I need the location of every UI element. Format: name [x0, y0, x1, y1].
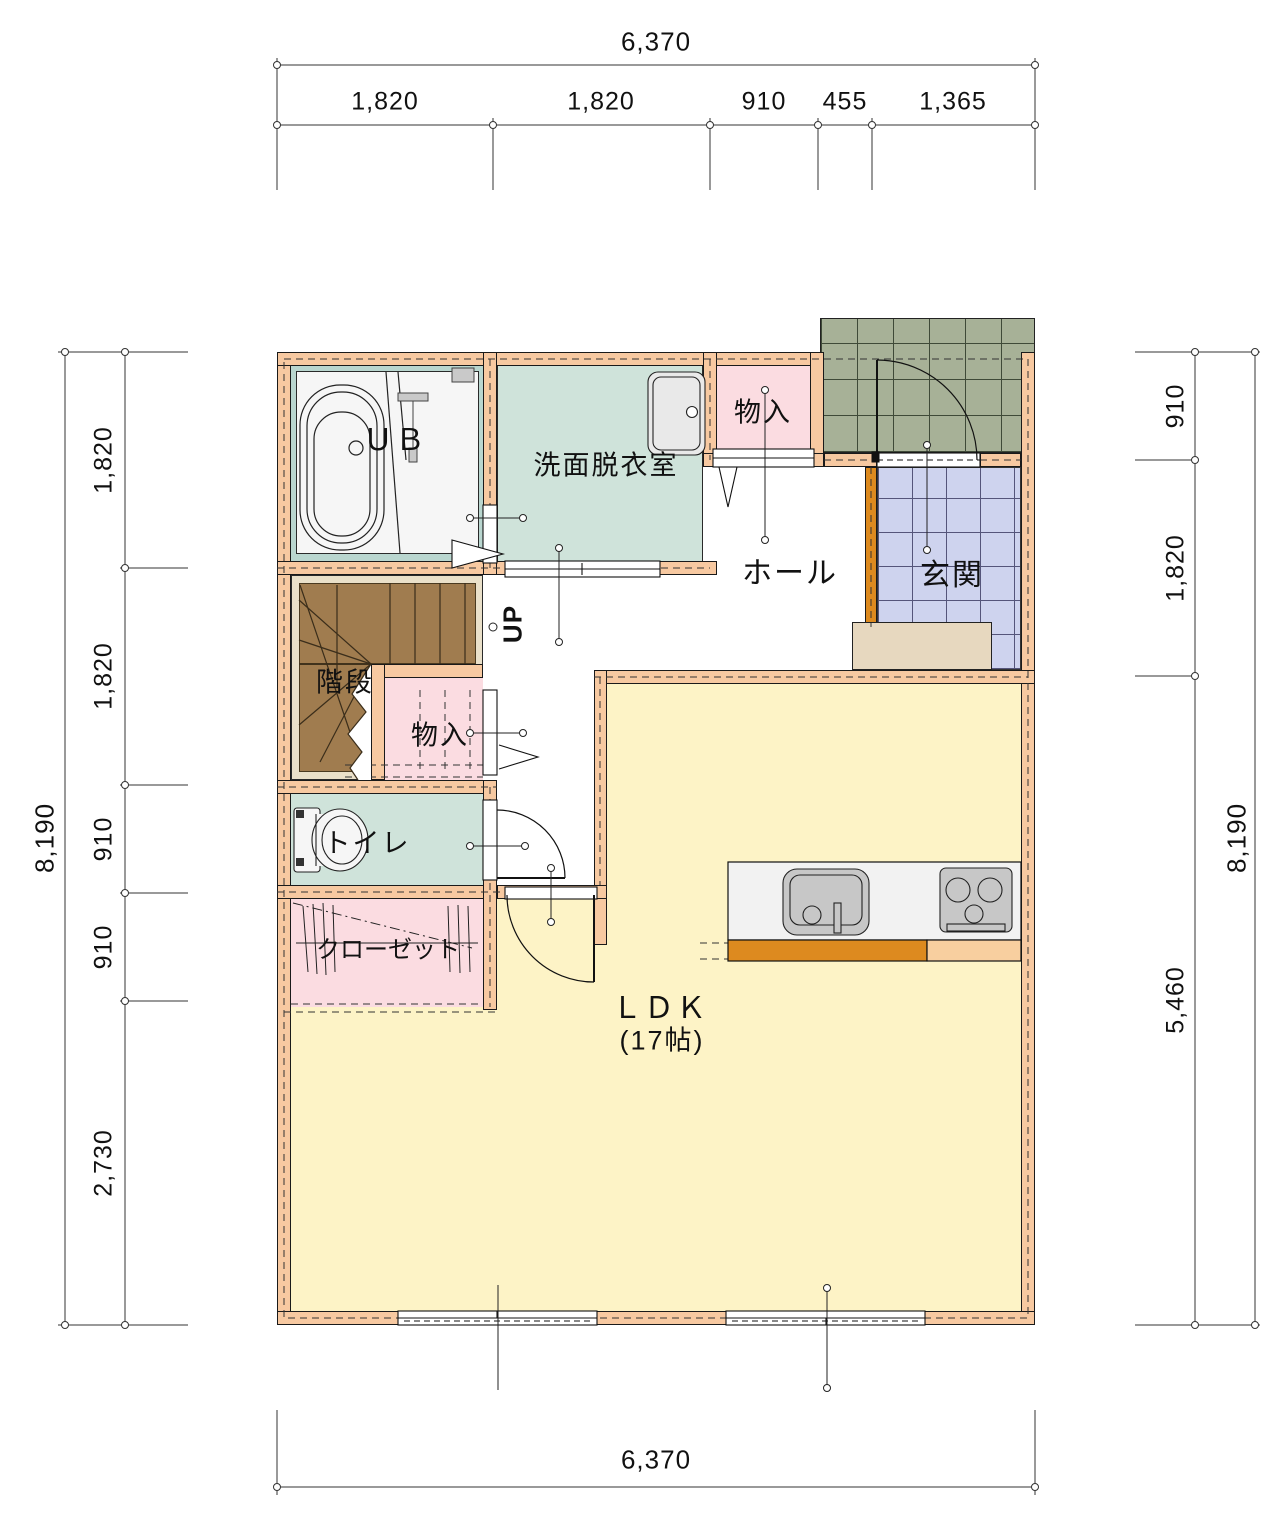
- dim-left-seg-5: 2,730: [90, 1129, 119, 1197]
- dim-top-seg-4: 455: [823, 88, 868, 117]
- dim-top-seg-3: 910: [742, 88, 787, 117]
- room-label-washroom: 洗面脱衣室: [534, 444, 679, 483]
- room-label-storage-top: 物入: [734, 391, 792, 430]
- washroom-sliding-door: [505, 561, 660, 577]
- kitchen-sink-icon: [783, 869, 869, 935]
- dim-right-seg-1: 910: [1162, 384, 1191, 429]
- dim-left-seg-4: 910: [90, 925, 119, 970]
- dim-top-total: 6,370: [621, 27, 691, 58]
- dim-left-seg-2: 1,820: [90, 642, 119, 710]
- dim-top-seg-1: 1,820: [351, 88, 419, 117]
- plan-linework: [0, 0, 1285, 1523]
- entrance-door-icon: [872, 360, 980, 467]
- dimension-ticks: [62, 62, 1259, 1491]
- bathtub-icon: [300, 372, 406, 553]
- stairs-up-label: UP: [498, 605, 529, 643]
- dim-left-seg-1: 1,820: [90, 426, 119, 494]
- dim-right-seg-2: 1,820: [1162, 534, 1191, 602]
- room-label-hall: ホール: [742, 548, 838, 592]
- stove-icon: [940, 868, 1012, 932]
- dim-bottom-total: 6,370: [621, 1445, 691, 1476]
- dim-left-total: 8,190: [30, 803, 61, 873]
- ub-door-icon: [452, 505, 503, 568]
- floor-plan-canvas: 6,370 1,820 1,820 910 455 1,365 6,370 8,…: [0, 0, 1285, 1523]
- dim-right-total: 8,190: [1222, 803, 1253, 873]
- room-label-stairs: 階段: [316, 661, 374, 700]
- dim-right-seg-3: 5,460: [1162, 966, 1191, 1034]
- room-label-storage-mid: 物入: [411, 714, 469, 753]
- dim-left-seg-3: 910: [90, 817, 119, 862]
- room-label-ldk-area: (17帖): [619, 1019, 704, 1058]
- room-label-closet: クローゼット: [316, 930, 460, 965]
- dim-top-seg-5: 1,365: [919, 88, 987, 117]
- room-label-ub: ＵＢ: [363, 415, 427, 459]
- storage-top-door: [713, 449, 814, 507]
- dimension-lines: [58, 58, 1260, 1495]
- dim-top-seg-2: 1,820: [567, 88, 635, 117]
- room-label-toilet: トイレ: [324, 822, 411, 861]
- room-label-entrance: 玄関: [920, 550, 984, 594]
